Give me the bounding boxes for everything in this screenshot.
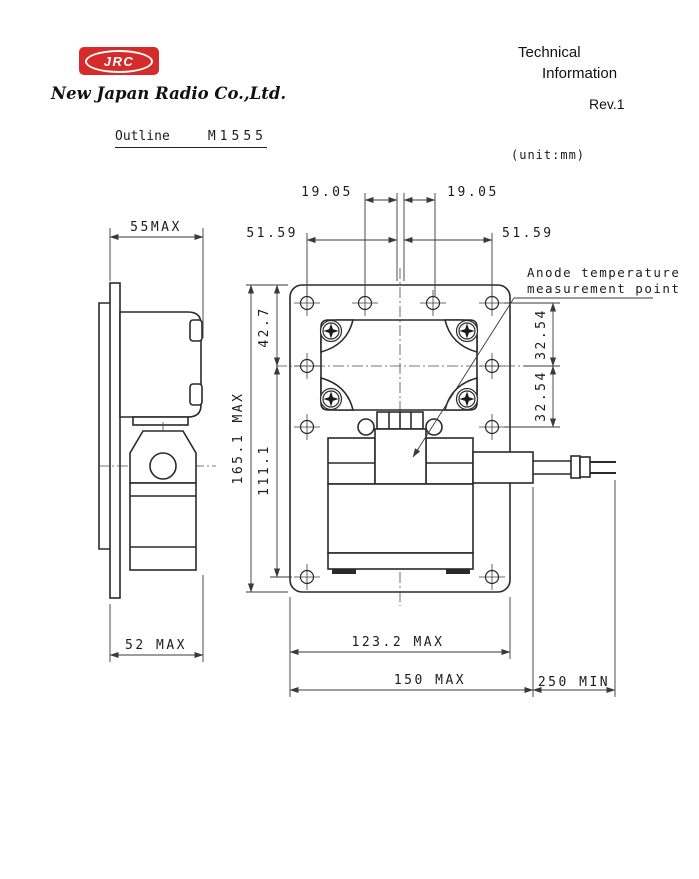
side-mounting-plate xyxy=(110,283,120,598)
dim-offset-left: 51.59 xyxy=(246,226,298,241)
front-view xyxy=(276,268,616,606)
lead-ferrule-2 xyxy=(580,457,590,477)
body-foot-left xyxy=(332,569,356,574)
dim-hole-pitch-lower: 32.54 xyxy=(534,370,549,422)
dim-depth-max: 55MAX xyxy=(130,220,182,235)
side-dome-edge xyxy=(99,303,110,549)
body-right-block xyxy=(426,438,473,484)
dim-side-depth-max: 52 MAX xyxy=(125,638,187,653)
dim-top-to-center: 42.7 xyxy=(257,306,272,347)
body-left-block xyxy=(328,438,375,484)
dim-pitch-left: 19.05 xyxy=(301,185,353,200)
filter-box xyxy=(473,452,533,483)
side-magnet-box xyxy=(120,312,201,417)
side-clip-lower xyxy=(190,384,202,405)
filter-box-and-leads xyxy=(473,452,616,483)
side-clip-upper xyxy=(190,320,202,341)
dim-center-to-bottom: 111.1 xyxy=(257,444,272,496)
side-box-lip xyxy=(133,417,188,425)
dim-overall-width: 150 MAX xyxy=(394,673,466,688)
dim-hole-pitch-upper: 32.54 xyxy=(534,308,549,360)
annotation-line1: Anode temperature xyxy=(527,265,680,280)
dim-height-max: 165.1 MAX xyxy=(231,392,246,485)
technical-sheet-page: JRC New Japan Radio Co.,Ltd. Technical I… xyxy=(0,0,699,879)
body-foot-right xyxy=(446,569,470,574)
annotation-line2: measurement point xyxy=(527,281,680,296)
dim-flange-width: 123.2 MAX xyxy=(352,635,445,650)
side-dome-hole xyxy=(150,453,176,479)
dim-offset-right: 51.59 xyxy=(502,226,554,241)
lead-ferrule xyxy=(571,456,580,478)
dim-lead-min: 250 MIN xyxy=(538,675,610,690)
side-view: 55MAX 52 MAX xyxy=(98,220,216,662)
anode-block xyxy=(375,429,426,484)
body-base xyxy=(328,553,473,569)
outline-drawing: 55MAX 52 MAX xyxy=(0,0,699,879)
body-main xyxy=(328,484,473,553)
dim-pitch-right: 19.05 xyxy=(447,185,499,200)
